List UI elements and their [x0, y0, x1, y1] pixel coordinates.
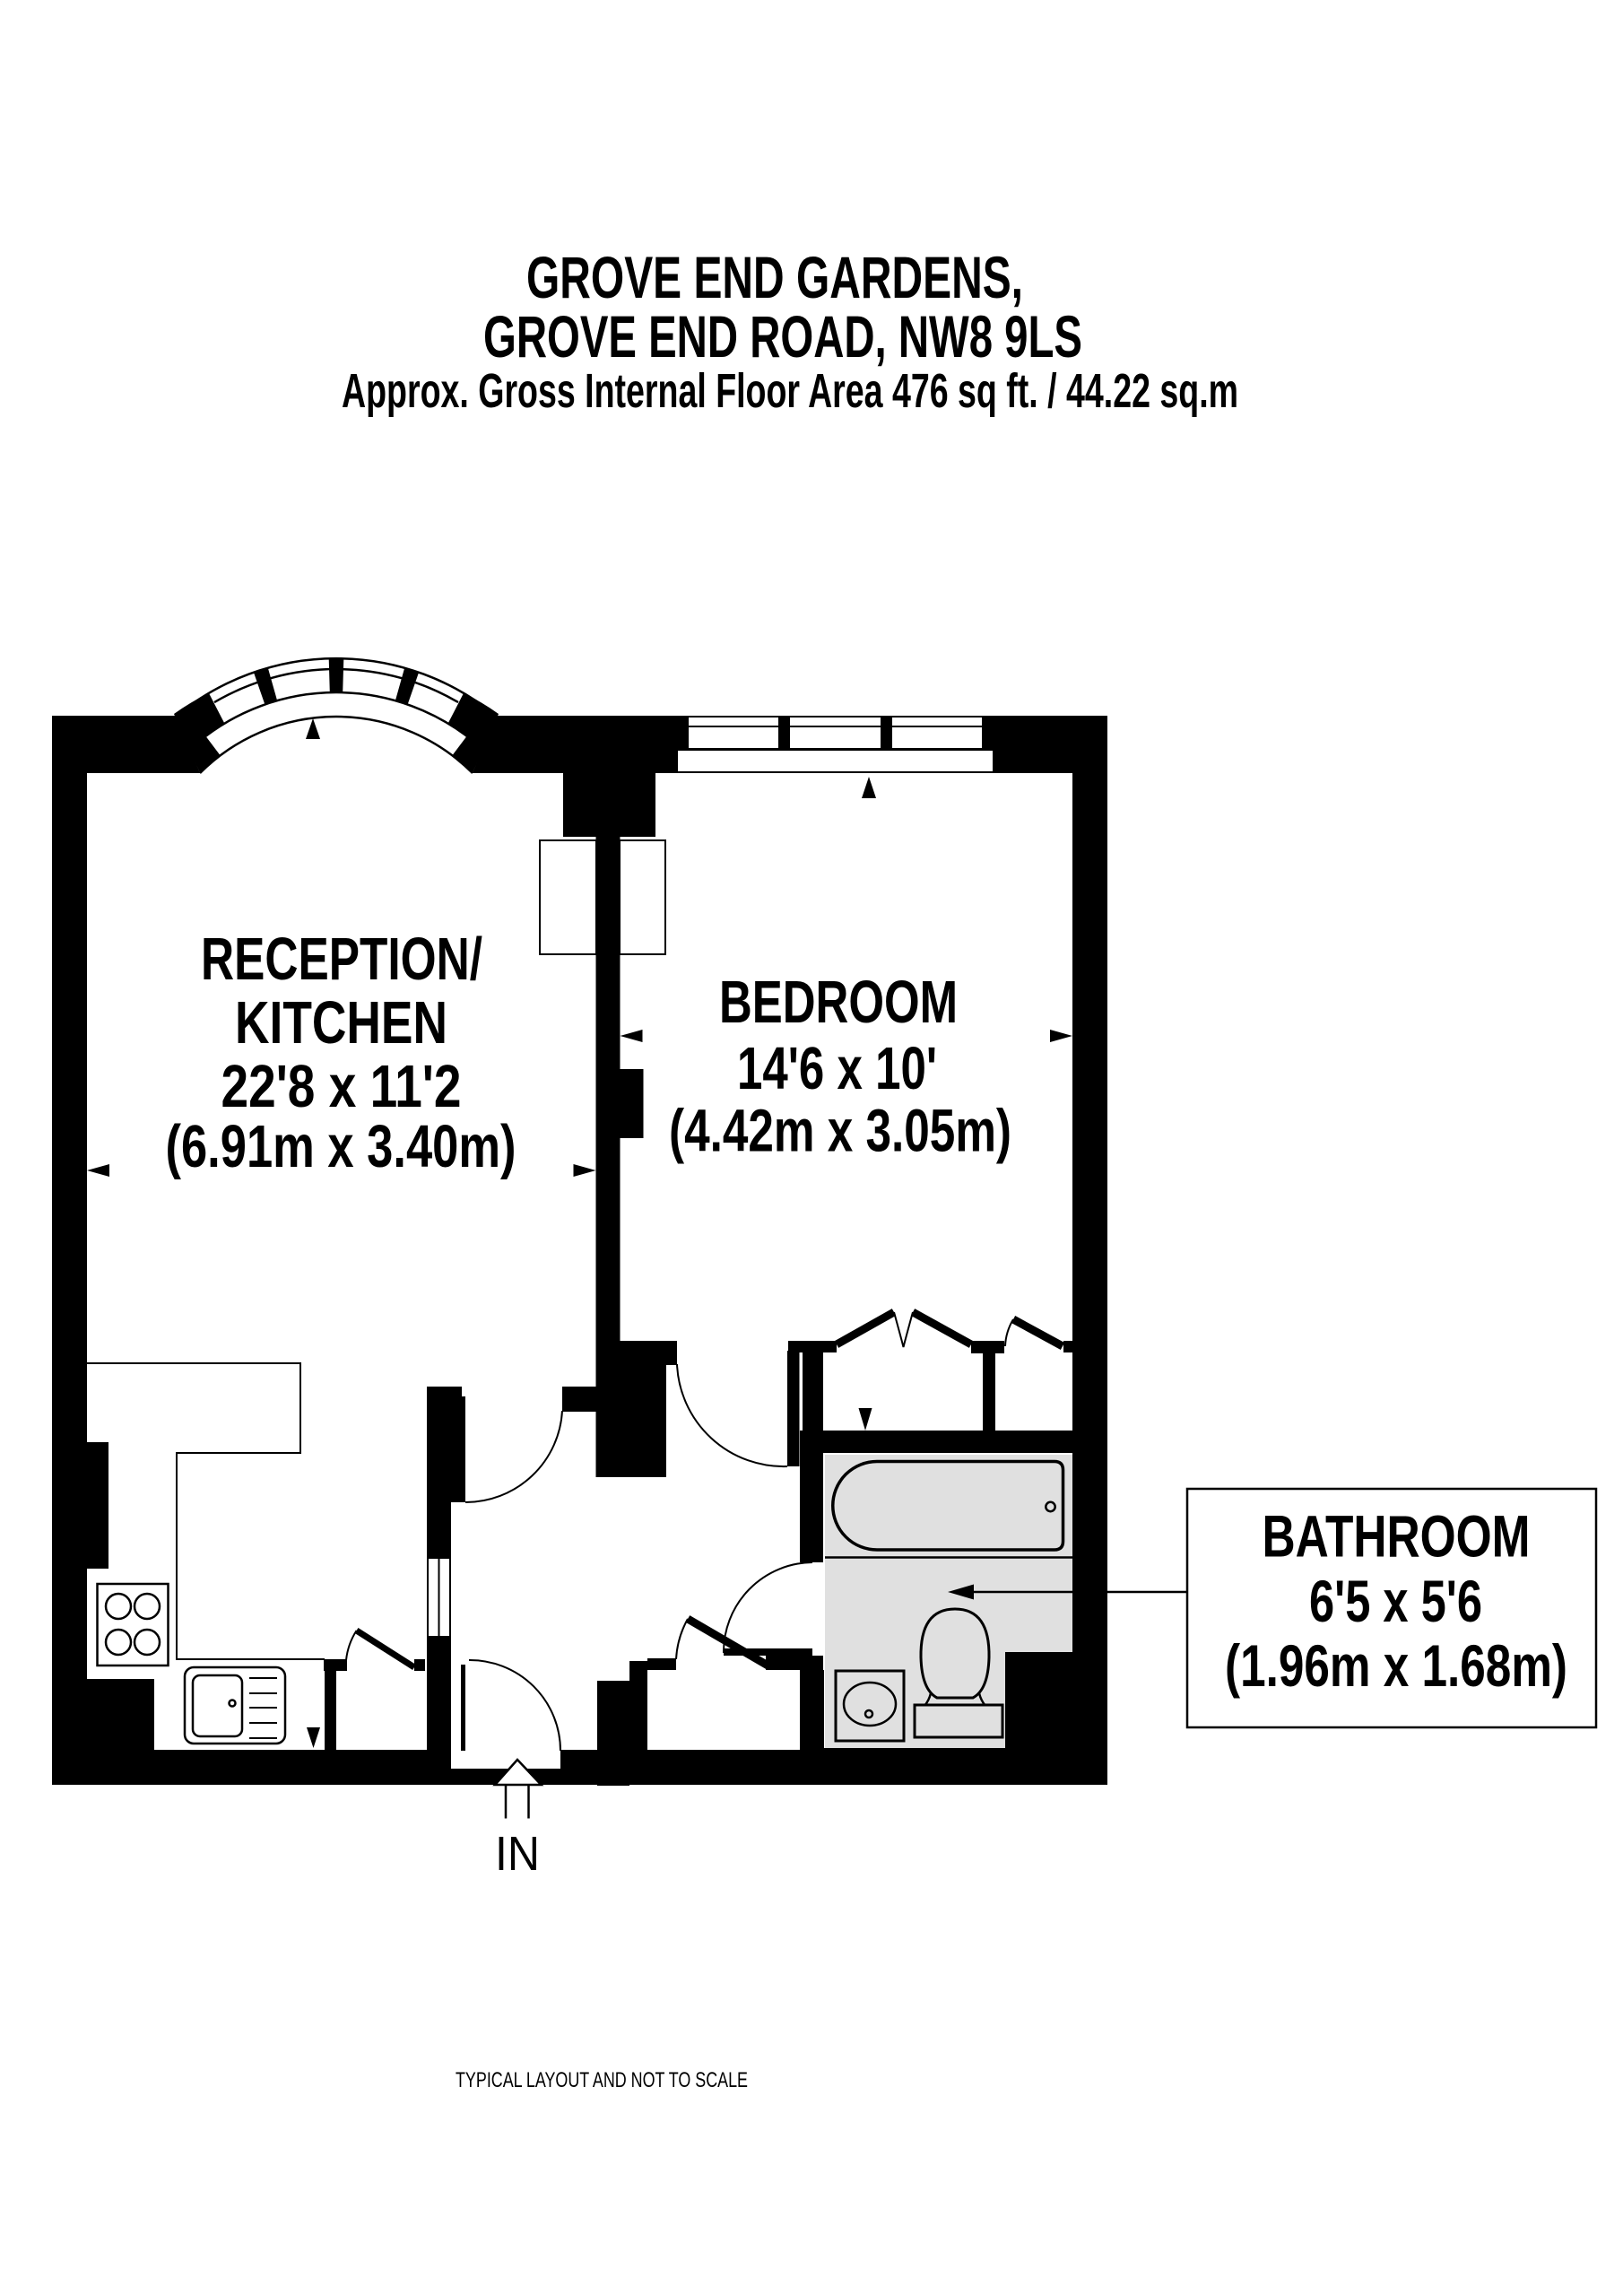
svg-text:(1.96m x 1.68m): (1.96m x 1.68m) [1225, 1632, 1567, 1699]
svg-text:(4.42m x 3.05m): (4.42m x 3.05m) [669, 1098, 1011, 1165]
svg-text:GROVE END ROAD, NW8 9LS: GROVE END ROAD, NW8 9LS [483, 303, 1082, 370]
svg-text:TYPICAL LAYOUT AND NOT TO SCAL: TYPICAL LAYOUT AND NOT TO SCALE [456, 2068, 748, 2092]
svg-text:Approx. Gross Internal Floor A: Approx. Gross Internal Floor Area 476 sq… [342, 364, 1238, 418]
svg-text:RECEPTION/: RECEPTION/ [201, 926, 482, 993]
svg-text:6'5 x 5'6: 6'5 x 5'6 [1309, 1568, 1482, 1634]
svg-text:KITCHEN: KITCHEN [235, 989, 447, 1057]
svg-text:GROVE END GARDENS,: GROVE END GARDENS, [526, 244, 1023, 310]
svg-text:BEDROOM: BEDROOM [719, 969, 958, 1036]
svg-text:BATHROOM: BATHROOM [1263, 1503, 1531, 1570]
svg-text:(6.91m x 3.40m): (6.91m x 3.40m) [166, 1113, 516, 1180]
svg-text:IN: IN [495, 1827, 540, 1881]
svg-text:22'8 x 11'2: 22'8 x 11'2 [221, 1053, 462, 1120]
svg-text:14'6 x 10': 14'6 x 10' [737, 1035, 937, 1102]
